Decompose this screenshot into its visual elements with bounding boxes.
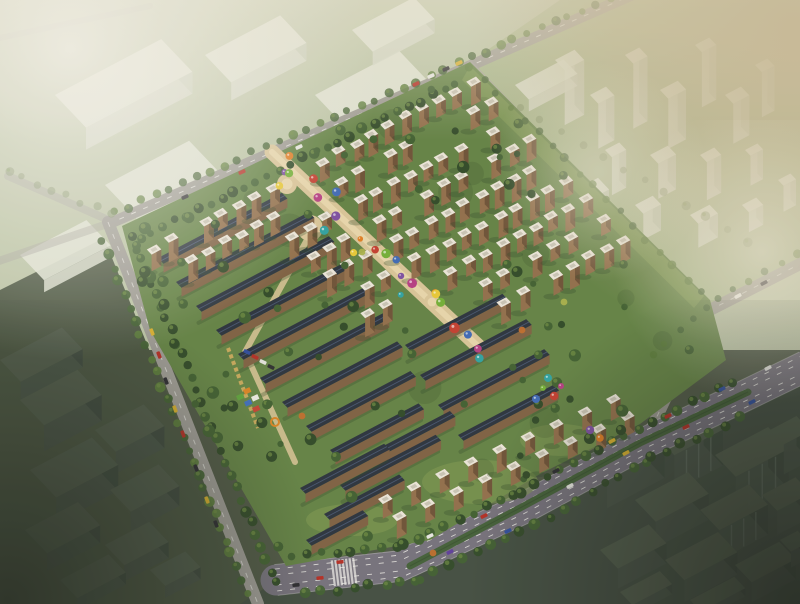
aerial-rendering-photo [0, 0, 800, 604]
rendering-canvas [0, 0, 800, 604]
sepia-film [0, 0, 800, 604]
